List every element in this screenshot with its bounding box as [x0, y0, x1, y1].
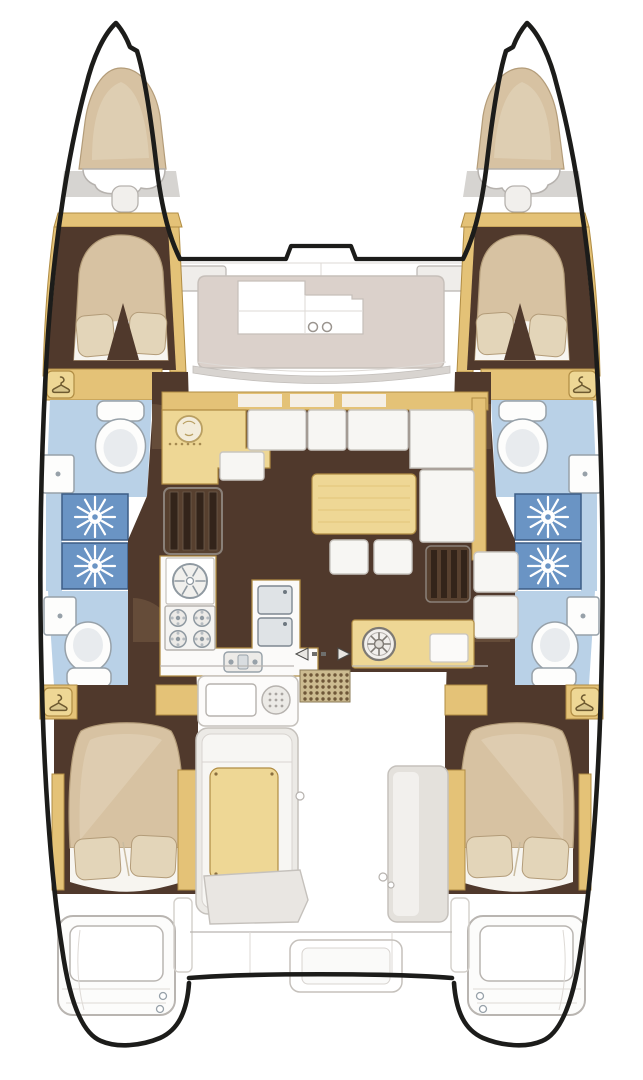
stool [330, 540, 368, 574]
floor-plan-canvas [0, 0, 643, 1080]
grill-icon [262, 686, 290, 714]
forward-crossbeam [180, 246, 463, 259]
round-sink-icon [166, 558, 214, 604]
settee-cushion [308, 410, 346, 450]
sofa-cushion [410, 410, 474, 468]
port-companionway-stairs [164, 488, 222, 554]
stern-bench [204, 870, 308, 924]
nav-seat [220, 452, 264, 480]
wet-bar [198, 676, 298, 726]
side-cabinet [474, 552, 518, 592]
galley-faucet-icon [224, 652, 262, 672]
cockpit-table [210, 768, 278, 880]
cockpit-sink [206, 684, 256, 716]
teak-grate-icon [300, 670, 350, 702]
nav-instrument-icon [176, 416, 202, 442]
cockpit [190, 676, 452, 992]
settee-cushion [248, 410, 306, 450]
catamaran-floor-plan [0, 0, 643, 1080]
deck-fitting-icon [388, 882, 394, 888]
side-cabinet [474, 596, 518, 638]
salon-sofa [410, 398, 486, 560]
settee-cushion [348, 410, 408, 450]
wheel-sink-icon [363, 628, 395, 660]
aft-counter [352, 620, 474, 668]
stool [374, 540, 412, 574]
deck-fitting-icon [379, 873, 387, 881]
deck-drain-icon [296, 792, 304, 800]
transom-deck [190, 932, 452, 992]
sofa-cushion [420, 470, 474, 542]
foredeck [166, 263, 477, 384]
salon-table [312, 474, 416, 534]
starboard-companionway-stairs [426, 546, 470, 602]
stove-icon [165, 606, 215, 650]
cockpit-bench-starboard [388, 766, 448, 922]
